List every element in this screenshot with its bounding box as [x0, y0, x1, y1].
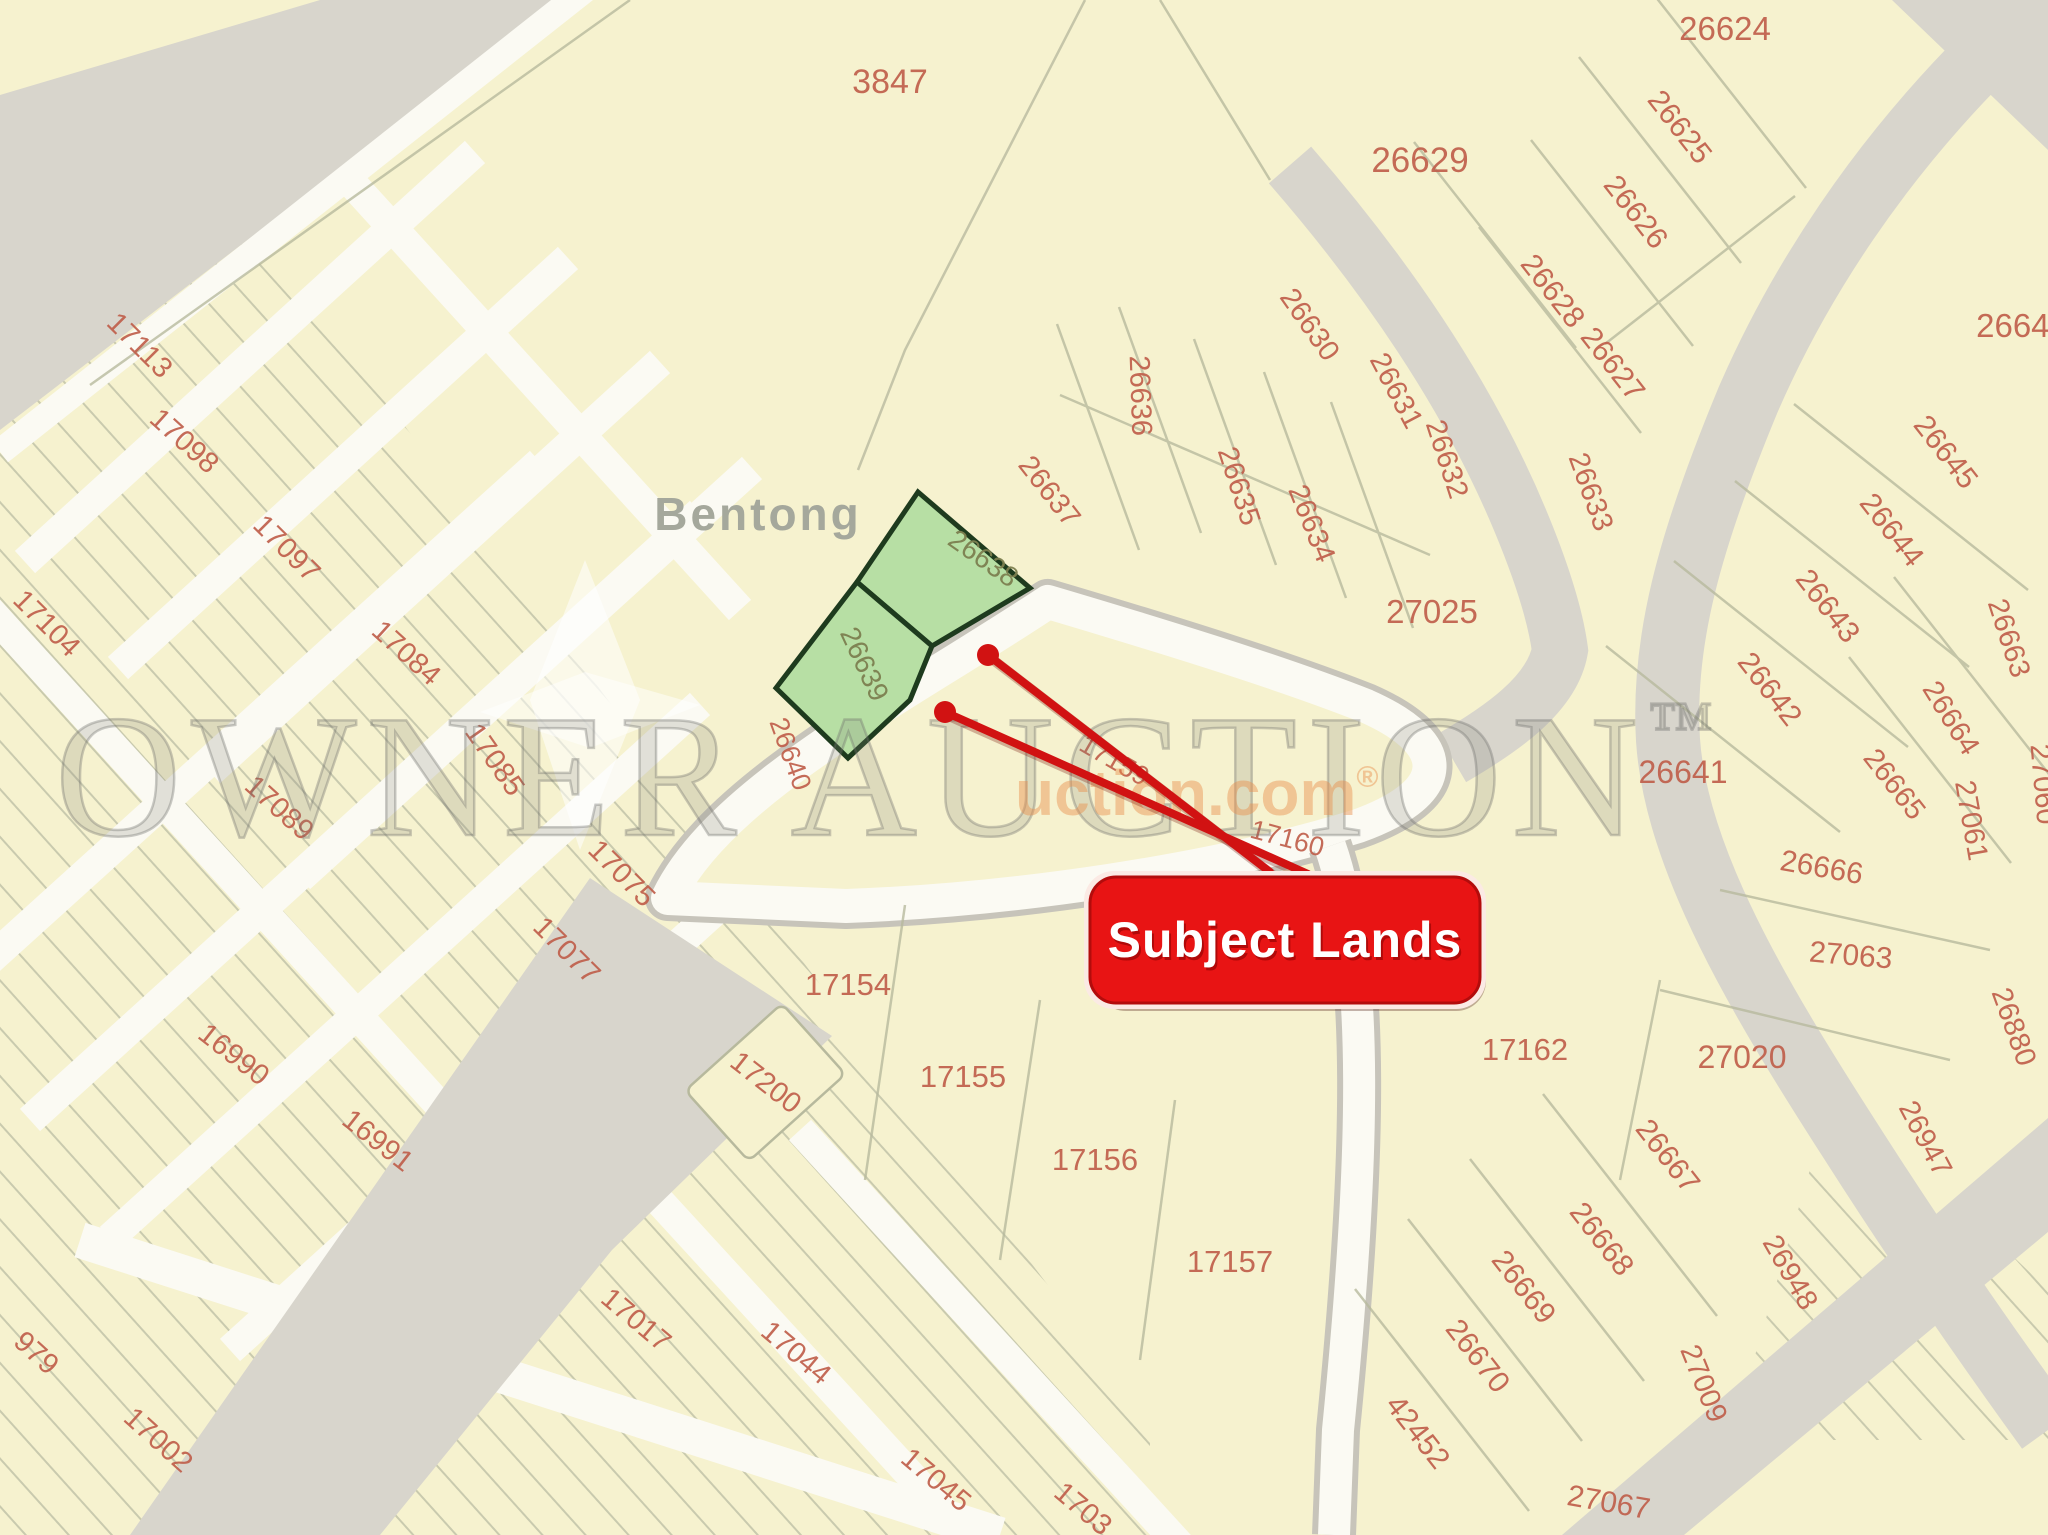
lot-number-label: 26636 — [1123, 355, 1158, 437]
region-label: Bentong — [654, 488, 862, 540]
leader-dot — [977, 644, 999, 666]
watermark-text: OWNER AUCTION™ — [55, 679, 1723, 873]
lot-number-label: 17155 — [920, 1059, 1006, 1094]
lot-number-label: 27020 — [1698, 1039, 1787, 1075]
lot-number-label: 17154 — [805, 967, 891, 1002]
leader-dot — [934, 701, 956, 723]
subject-lands-label: Subject Lands — [1108, 912, 1463, 968]
lot-number-label: 17157 — [1187, 1244, 1273, 1279]
lot-number-label: 3847 — [852, 63, 928, 101]
lot-number-label: 26624 — [1679, 10, 1771, 47]
lot-number-label: 26629 — [1371, 141, 1468, 180]
cadastral-map-canvas: Bentong 38472662426625266262662926628266… — [0, 0, 2048, 1535]
map-viewport: Bentong 38472662426625266262662926628266… — [0, 0, 2048, 1535]
lot-number-label: 26646 — [1976, 307, 2048, 344]
lot-number-label: 27025 — [1386, 593, 1478, 630]
lot-number-label: 17156 — [1052, 1142, 1138, 1177]
lot-number-label: 17162 — [1482, 1032, 1568, 1067]
